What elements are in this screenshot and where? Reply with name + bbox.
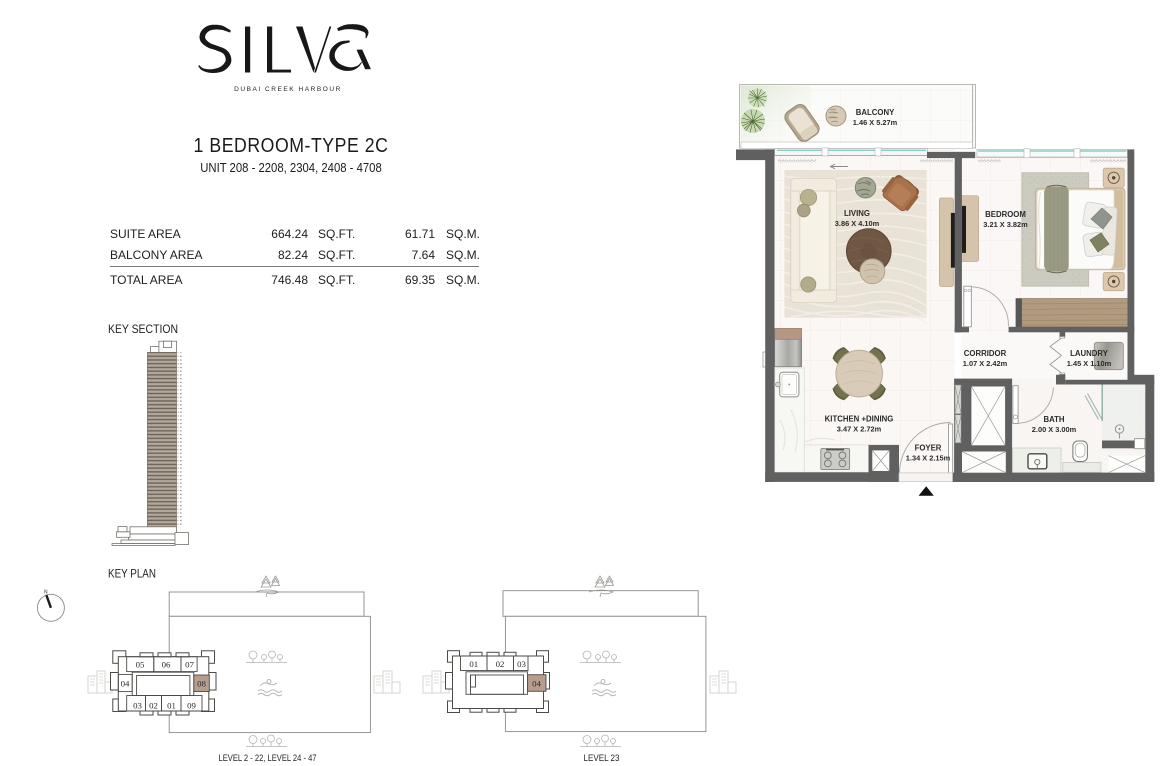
svg-text:LIVING: LIVING [844,209,870,218]
svg-text:BATH: BATH [1043,415,1064,424]
svg-text:CORRIDOR: CORRIDOR [964,349,1007,358]
svg-text:LEVEL 23: LEVEL 23 [584,753,620,764]
svg-text:3.21 X 3.82m: 3.21 X 3.82m [983,220,1028,229]
svg-text:3.86 X 4.10m: 3.86 X 4.10m [835,219,880,228]
svg-text:LAUNDRY: LAUNDRY [1070,349,1109,358]
svg-text:02: 02 [149,701,158,711]
svg-text:07: 07 [185,660,194,670]
svg-text:04: 04 [532,679,541,689]
svg-text:03: 03 [133,701,142,711]
svg-text:01: 01 [469,659,478,669]
svg-text:BALCONY: BALCONY [856,108,895,117]
svg-text:03: 03 [517,659,526,669]
svg-text:1.45 X 1.10m: 1.45 X 1.10m [1067,359,1112,368]
svg-text:09: 09 [187,701,196,711]
svg-text:08: 08 [197,679,206,689]
svg-text:1.07 X 2.42m: 1.07 X 2.42m [963,359,1008,368]
svg-text:04: 04 [121,679,130,689]
svg-text:06: 06 [162,660,171,670]
svg-text:02: 02 [496,659,505,669]
svg-text:FOYER: FOYER [915,444,942,453]
svg-text:05: 05 [136,660,145,670]
svg-text:3.47 X 2.72m: 3.47 X 2.72m [837,425,882,434]
svg-text:2.00 X 3.00m: 2.00 X 3.00m [1032,425,1077,434]
svg-text:KEY PLAN: KEY PLAN [108,567,156,581]
svg-text:KEY SECTION: KEY SECTION [108,322,178,336]
svg-text:1.46 X 5.27m: 1.46 X 5.27m [853,118,898,127]
svg-text:01: 01 [167,701,176,711]
svg-text:LEVEL 2 - 22, LEVEL 24 - 47: LEVEL 2 - 22, LEVEL 24 - 47 [219,753,317,764]
svg-text:N: N [44,590,48,596]
svg-text:BEDROOM: BEDROOM [985,210,1026,219]
svg-text:KITCHEN +DINING: KITCHEN +DINING [825,415,894,424]
svg-text:1.34 X 2.15m: 1.34 X 2.15m [906,454,951,463]
